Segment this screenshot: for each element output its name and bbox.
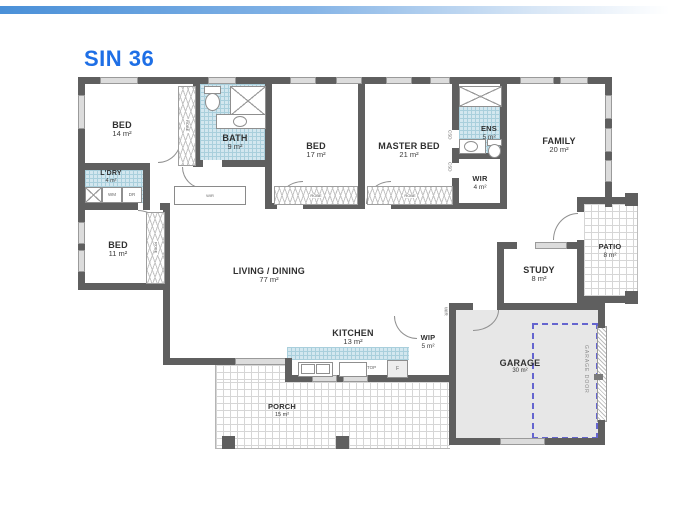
- ldry-name: L'DRY: [100, 170, 121, 178]
- room-label-porch: PORCH 15 m²: [268, 403, 296, 418]
- porch-name: PORCH: [268, 403, 296, 412]
- bed3-robe-label: ROBE: [154, 241, 158, 254]
- patio-name: PATIO: [599, 243, 622, 252]
- bed1-robe: ROBE: [178, 86, 196, 166]
- window-bed3-a: [78, 222, 85, 244]
- wall-bath-bed2: [265, 84, 272, 209]
- room-label-bed3: BED 11 m²: [108, 240, 128, 259]
- header-gradient-bar: [0, 6, 690, 14]
- room-label-bath: BATH 9 m²: [222, 133, 247, 152]
- window-family-side-a: [605, 95, 612, 119]
- bath-basin-icon: [233, 116, 247, 127]
- washing-machine-label: WM: [108, 193, 116, 198]
- wall-bed2-master: [358, 84, 365, 209]
- wall-garage-right-top: [598, 303, 605, 328]
- bed1-area: 14 m²: [112, 130, 132, 138]
- kitchen-sink-bowl-b: [316, 364, 330, 374]
- patio-post-bottom: [625, 291, 638, 304]
- window-bed2-a: [290, 77, 316, 84]
- room-label-master: MASTER BED 21 m²: [378, 141, 440, 160]
- csd-label-2: CSD: [447, 162, 452, 172]
- garage-area: 30 m²: [500, 368, 541, 375]
- window-bed2-b: [336, 77, 362, 84]
- room-label-bed2: BED 17 m²: [306, 141, 326, 160]
- wip-door-arc: [394, 316, 417, 339]
- room-label-wip: WIP 5 m²: [421, 334, 436, 350]
- bed3-area: 11 m²: [108, 250, 128, 258]
- room-label-patio: PATIO 8 m²: [599, 243, 622, 259]
- ens-area: 5 m²: [481, 134, 497, 141]
- porch-post-left: [222, 436, 235, 449]
- window-bed3-b: [78, 250, 85, 272]
- window-bath: [208, 77, 236, 84]
- dryer: DR: [122, 187, 142, 203]
- study-area: 8 m²: [523, 275, 555, 283]
- patio-door-arc: [553, 213, 578, 240]
- window-family-b: [560, 77, 588, 84]
- bath-area: 9 m²: [222, 143, 247, 151]
- ens-name: ENS: [481, 125, 497, 134]
- kitchen-area: 13 m²: [332, 338, 373, 346]
- bed2-robe: ROBE: [274, 186, 358, 205]
- living-area: 77 m²: [233, 276, 305, 284]
- bed2-robe-label: ROBE: [309, 194, 322, 198]
- patio-post-top: [625, 193, 638, 206]
- window-garage-rear: [500, 438, 545, 445]
- wall-bed3-bottom: [78, 283, 170, 290]
- window-family-a: [520, 77, 554, 84]
- porch-paving-upper: [215, 365, 286, 382]
- hall-wir-label: WIR: [206, 193, 214, 198]
- stacker-door-living: [235, 358, 290, 365]
- room-label-ldry: L'DRY 4 m²: [100, 170, 121, 184]
- bed2-area: 17 m²: [306, 151, 326, 159]
- wall-garage-bottom-b: [545, 438, 605, 445]
- wall-garage-top-b: [500, 303, 605, 310]
- wall-bath-bottom-b: [222, 160, 272, 167]
- master-area: 21 m²: [378, 151, 440, 159]
- room-label-bed1: BED 14 m²: [112, 120, 132, 139]
- fridge-label: F: [396, 366, 399, 372]
- bed1-robe-label: ROBE: [185, 119, 189, 132]
- patio-area: 8 m²: [599, 252, 622, 259]
- family-area: 20 m²: [542, 146, 575, 154]
- porch-paving: [215, 382, 450, 449]
- wall-study-left: [497, 242, 504, 310]
- ens-basin-icon: [464, 141, 478, 152]
- kitchen-sink-bowl-a: [301, 364, 315, 374]
- room-label-ens: ENS 5 m²: [481, 125, 497, 141]
- window-bed1: [100, 77, 138, 84]
- window-bed1-side: [78, 95, 85, 129]
- cooktop-label: TOP: [367, 366, 376, 371]
- fridge-space: F: [387, 360, 408, 378]
- bath-shower-icon: [230, 86, 266, 116]
- wall-kitchen-south-c: [368, 375, 455, 382]
- plan-title: SIN 36: [84, 46, 154, 72]
- wall-master-ens-a: [452, 84, 459, 130]
- wip-area: 5 m²: [421, 343, 436, 350]
- dryer-label: DR: [129, 193, 136, 198]
- bath-toilet-icon: [205, 93, 220, 111]
- wall-garage-top-a: [449, 303, 473, 310]
- ldry-area: 4 m²: [100, 178, 121, 184]
- wir-store-label: WIR: [443, 307, 448, 316]
- wall-laundry-top: [78, 163, 150, 170]
- porch-area: 15 m²: [268, 412, 296, 418]
- ens-toilet-icon: [488, 144, 501, 158]
- room-label-living: LIVING / DINING 77 m²: [233, 266, 305, 285]
- wir-area: 4 m²: [472, 184, 487, 191]
- csd-label-1: CSD: [447, 130, 452, 140]
- laundry-tub-icon: [85, 187, 102, 203]
- room-label-garage: GARAGE 30 m²: [500, 358, 541, 375]
- washing-machine: WM: [102, 187, 122, 203]
- wall-bed3-top-a: [78, 203, 138, 210]
- window-master-a: [386, 77, 412, 84]
- garage-door-label: GARAGE DOOR: [583, 345, 588, 394]
- master-robe: ROBE: [367, 186, 453, 205]
- wir-name: WIR: [472, 175, 487, 184]
- room-label-family: FAMILY 20 m²: [542, 136, 575, 155]
- wall-living-south: [163, 358, 235, 365]
- wall-garage-left: [449, 303, 456, 445]
- ens-shower-icon: [459, 86, 502, 107]
- room-label-study: STUDY 8 m²: [523, 265, 555, 284]
- garage-name: GARAGE: [500, 358, 541, 368]
- window-family-side-b: [605, 128, 612, 152]
- porch-post-right: [336, 436, 349, 449]
- window-family-side-c: [605, 160, 612, 182]
- cooktop-icon: [339, 362, 367, 377]
- wall-garage-right-bottom: [598, 420, 605, 445]
- hall-wir-cupboard: WIR: [174, 186, 246, 205]
- wall-garage-bottom-a: [449, 438, 500, 445]
- window-study: [535, 242, 567, 249]
- garage-door-handle: [594, 374, 603, 380]
- room-label-kitchen: KITCHEN 13 m²: [332, 328, 373, 347]
- bed3-robe: ROBE: [146, 212, 165, 284]
- kitchen-bench-tiles: [287, 347, 409, 360]
- floor-plan-page: SIN 36: [0, 0, 690, 517]
- wall-laundry-right: [143, 163, 150, 210]
- wip-name: WIP: [421, 334, 436, 343]
- window-master-b: [430, 77, 450, 84]
- room-label-wir: WIR 4 m²: [472, 175, 487, 191]
- master-robe-label: ROBE: [403, 194, 416, 198]
